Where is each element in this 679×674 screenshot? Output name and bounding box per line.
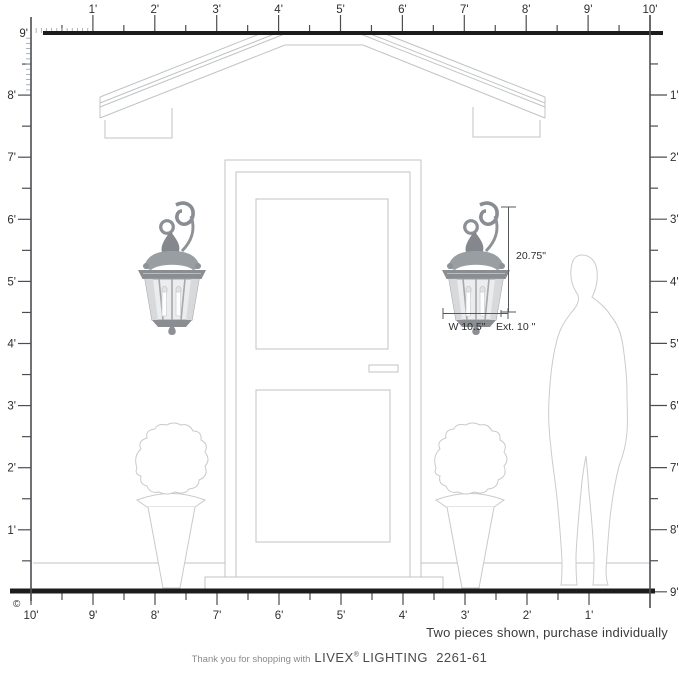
copyright-mark: ©	[13, 599, 21, 610]
door-handle-plate	[369, 365, 398, 372]
ruler-label: 2'	[151, 4, 160, 16]
lantern-left	[138, 203, 206, 335]
height-dimension-label: 20.75"	[516, 250, 546, 262]
brand-name: LIVEX	[314, 650, 353, 665]
ruler-label: 9'	[670, 587, 679, 599]
ruler-label: 6'	[670, 401, 679, 413]
footer-brand-line: Thank you for shopping withLIVEX® LIGHTI…	[192, 650, 488, 665]
ruler-top: 1'2'3'4'5'6'7'8'9'10'	[36, 4, 657, 33]
ruler-label: 7'	[7, 152, 16, 164]
gable-roof	[100, 33, 545, 138]
purchase-note: Two pieces shown, purchase individually	[426, 625, 668, 640]
ruler-label: 1'	[89, 4, 98, 16]
ruler-label: 4'	[7, 339, 16, 351]
ruler-label: 5'	[7, 276, 16, 288]
ruler-label: 4'	[274, 4, 283, 16]
ruler-label: 5'	[336, 4, 345, 16]
registered-mark: ®	[354, 652, 359, 659]
extension-dimension-label: Ext. 10 "	[496, 321, 536, 333]
ruler-label: 9'	[89, 610, 98, 622]
ruler-label: 3'	[7, 401, 16, 413]
ruler-left: 9'8'7'6'5'4'3'2'1'	[7, 28, 31, 561]
diagram-page: 20.75" W 10.5" Ext. 10 " 1'2'3'4'5'6'7'8…	[0, 0, 679, 674]
woman-silhouette	[549, 255, 628, 585]
ruler-label: 3'	[212, 4, 221, 16]
ruler-label: 2'	[670, 152, 679, 164]
scale-diagram: 20.75" W 10.5" Ext. 10 " 1'2'3'4'5'6'7'8…	[0, 0, 679, 674]
ruler-label: 2'	[7, 463, 16, 475]
ruler-label: 7'	[213, 610, 222, 622]
ruler-label: 5'	[337, 610, 346, 622]
ruler-label: 3'	[461, 610, 470, 622]
ruler-label: 1'	[585, 610, 594, 622]
ruler-right: 1'2'3'4'5'6'7'8'9'	[650, 64, 679, 599]
width-dimension-label: W 10.5"	[449, 321, 486, 333]
ruler-label: 8'	[522, 4, 531, 16]
ruler-label: 7'	[460, 4, 469, 16]
footer-prefix: Thank you for shopping with	[192, 654, 311, 665]
ruler-label: 4'	[670, 276, 679, 288]
ruler-label: 9'	[584, 4, 593, 16]
product-number: LIGHTING 2261-61	[363, 650, 488, 665]
ruler-label: 7'	[670, 463, 679, 475]
ruler-bottom: 10'9'8'7'6'5'4'3'2'1'	[24, 591, 594, 622]
ruler-label: 10'	[643, 4, 658, 16]
ruler-label: 1'	[670, 90, 679, 102]
ruler-label: 6'	[275, 610, 284, 622]
ruler-label: 3'	[670, 214, 679, 226]
ruler-label: 8'	[151, 610, 160, 622]
ruler-label: 4'	[399, 610, 408, 622]
ruler-label: 8'	[670, 525, 679, 537]
ruler-label: 8'	[7, 90, 16, 102]
front-door	[225, 160, 421, 577]
ruler-label: 10'	[24, 610, 39, 622]
ruler-label: 2'	[523, 610, 532, 622]
door-step	[205, 577, 443, 590]
ruler-label: 1'	[7, 525, 16, 537]
ruler-label: 6'	[7, 214, 16, 226]
ruler-label: 6'	[398, 4, 407, 16]
ruler-label: 5'	[670, 338, 679, 350]
lantern-right	[442, 203, 510, 335]
